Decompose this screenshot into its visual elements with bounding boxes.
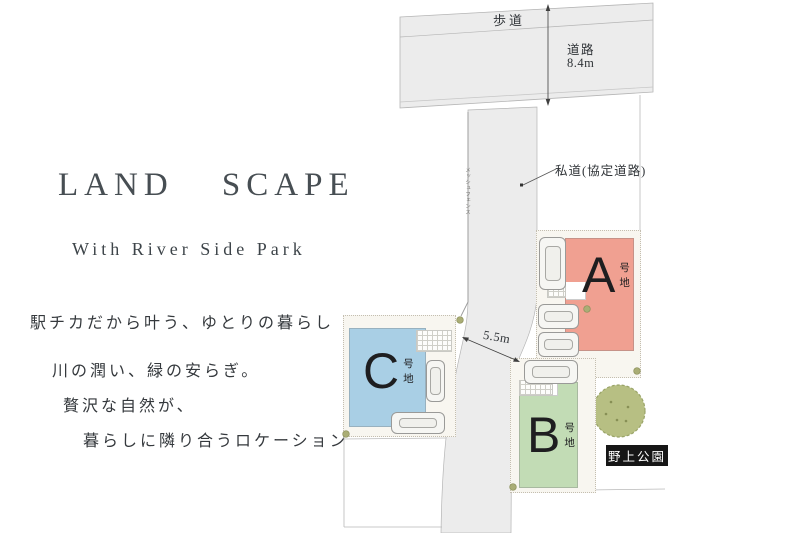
- landscape-flyer: LAND SCAPE With River Side Park 駅チカだから叶う…: [0, 0, 800, 533]
- car-icon: [539, 237, 566, 290]
- plot-label-a: A 号地: [582, 255, 633, 296]
- fence-label: メッシュフェンス: [463, 167, 471, 215]
- sidewalk-label: 歩道: [493, 10, 525, 29]
- plot-a-suffix: 号地: [619, 260, 633, 296]
- plot-b-letter: B: [527, 415, 560, 456]
- plot-label-b: B 号地: [527, 415, 577, 456]
- plot-a-letter: A: [582, 255, 615, 296]
- plot-c-suffix: 号地: [403, 356, 425, 392]
- car-icon: [391, 412, 445, 434]
- plot-label-c: C 号地: [363, 351, 425, 392]
- car-icon: [524, 360, 578, 384]
- car-icon: [426, 360, 445, 402]
- park-name-badge: 野上公園: [606, 445, 668, 466]
- road-shape: [400, 3, 653, 108]
- plot-b-suffix: 号地: [564, 420, 577, 456]
- park-tree-icon: [593, 385, 645, 437]
- road-width-label: 8.4m: [567, 56, 594, 71]
- site-plan-base: [0, 0, 800, 533]
- car-icon: [538, 304, 579, 329]
- building-b: B 号地: [519, 382, 578, 488]
- car-icon: [538, 332, 579, 357]
- plot-c-entrance-hatch: [416, 330, 452, 352]
- private-road-label: 私道(協定道路): [555, 160, 646, 179]
- plot-c-letter: C: [363, 351, 399, 392]
